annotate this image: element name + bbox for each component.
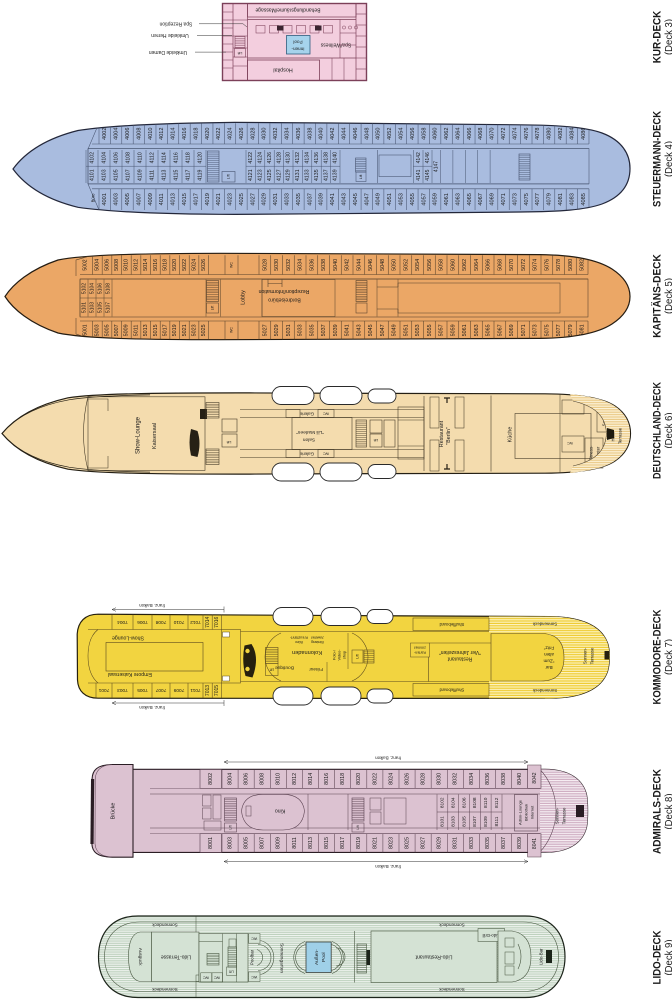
- svg-text:5101: 5101: [81, 302, 87, 313]
- svg-text:5061: 5061: [462, 324, 468, 336]
- svg-text:4052: 4052: [387, 127, 393, 139]
- svg-text:8003: 8003: [227, 837, 233, 849]
- svg-text:5108: 5108: [105, 283, 111, 294]
- svg-text:Pool: Pool: [321, 952, 327, 962]
- svg-text:Umkleide Damen: Umkleide Damen: [149, 49, 188, 55]
- svg-text:KOMMODORE-DECK: KOMMODORE-DECK: [651, 609, 663, 704]
- svg-text:5073: 5073: [533, 324, 539, 336]
- svg-text:WC: WC: [323, 412, 329, 416]
- svg-text:5003: 5003: [95, 324, 101, 336]
- svg-text:8022: 8022: [372, 773, 378, 785]
- svg-text:5037: 5037: [321, 324, 327, 336]
- svg-text:5064: 5064: [474, 259, 480, 271]
- svg-text:5019: 5019: [172, 324, 178, 336]
- svg-text:Umkleide Herren: Umkleide Herren: [151, 32, 189, 38]
- svg-text:8107: 8107: [472, 816, 478, 827]
- svg-text:4118: 4118: [185, 152, 191, 163]
- svg-text:5042: 5042: [345, 259, 351, 271]
- svg-text:Sonnendeck: Sonnendeck: [439, 922, 465, 927]
- svg-text:Lido-Terrasse: Lido-Terrasse: [161, 953, 192, 959]
- svg-text:5033: 5033: [298, 324, 304, 336]
- svg-text:7009: 7009: [173, 687, 184, 693]
- svg-text:5058: 5058: [439, 259, 445, 271]
- svg-text:4066: 4066: [467, 127, 473, 139]
- svg-text:4071: 4071: [501, 193, 507, 205]
- svg-text:4141: 4141: [416, 169, 422, 180]
- svg-text:Büro: Büro: [295, 640, 303, 644]
- svg-text:5016: 5016: [153, 259, 159, 271]
- svg-text:"Lili Marleen": "Lili Marleen": [296, 429, 324, 435]
- svg-text:4064: 4064: [455, 127, 461, 139]
- svg-text:(Deck 3): (Deck 3): [664, 19, 672, 55]
- svg-text:7003: 7003: [117, 687, 128, 693]
- svg-text:4134: 4134: [304, 152, 310, 164]
- svg-text:Hospital: Hospital: [273, 67, 292, 73]
- svg-text:Büro: Büro: [91, 193, 96, 203]
- svg-text:5077: 5077: [556, 324, 562, 336]
- svg-text:8105: 8105: [461, 816, 467, 827]
- svg-text:"Berlin": "Berlin": [446, 427, 452, 445]
- svg-text:4077: 4077: [535, 193, 541, 205]
- svg-text:4076: 4076: [524, 127, 530, 139]
- svg-text:Sonnendeck: Sonnendeck: [152, 922, 178, 927]
- svg-text:5023: 5023: [191, 324, 197, 336]
- svg-text:4033: 4033: [284, 193, 290, 205]
- svg-text:5072: 5072: [521, 259, 527, 271]
- svg-text:Bordreisebüro: Bordreisebüro: [268, 297, 301, 303]
- svg-text:8007: 8007: [260, 837, 266, 849]
- svg-text:5054: 5054: [415, 259, 421, 271]
- svg-text:4069: 4069: [490, 193, 496, 205]
- svg-text:4014: 4014: [171, 127, 177, 139]
- svg-text:8027: 8027: [421, 837, 427, 849]
- svg-text:5039: 5039: [333, 324, 339, 336]
- svg-text:5106: 5106: [97, 283, 103, 294]
- svg-text:5006: 5006: [104, 259, 110, 271]
- svg-text:(Deck 4): (Deck 4): [664, 141, 672, 177]
- svg-text:4125: 4125: [267, 169, 273, 181]
- svg-text:Behandlungsräume/Massage: Behandlungsräume/Massage: [255, 7, 320, 13]
- svg-text:5018: 5018: [162, 259, 168, 271]
- svg-text:5009: 5009: [124, 324, 130, 336]
- svg-text:Juwelier: Juwelier: [310, 636, 324, 640]
- svg-text:5041: 5041: [345, 324, 351, 336]
- svg-text:5075: 5075: [544, 324, 550, 336]
- svg-text:5013: 5013: [143, 324, 149, 336]
- svg-text:4072: 4072: [501, 127, 507, 139]
- svg-text:5065: 5065: [486, 324, 492, 336]
- svg-text:8010: 8010: [276, 773, 282, 785]
- svg-text:5025: 5025: [201, 324, 207, 336]
- svg-text:5071: 5071: [521, 324, 527, 336]
- svg-text:8001: 8001: [208, 837, 214, 849]
- svg-text:4012: 4012: [159, 127, 165, 139]
- svg-text:5059: 5059: [450, 324, 456, 336]
- svg-text:WC: WC: [229, 262, 233, 268]
- svg-text:5002: 5002: [82, 259, 88, 270]
- svg-text:5047: 5047: [380, 324, 386, 336]
- svg-text:4018: 4018: [193, 127, 199, 139]
- svg-text:4081: 4081: [558, 193, 564, 205]
- svg-text:Lido-Bar: Lido-Bar: [539, 948, 544, 965]
- svg-text:4063: 4063: [455, 193, 461, 205]
- svg-text:WC: WC: [323, 452, 329, 456]
- svg-text:4046: 4046: [353, 127, 359, 139]
- svg-text:7015: 7015: [214, 685, 220, 696]
- svg-text:STEUERMANN-DECK: STEUERMANN-DECK: [651, 111, 663, 207]
- svg-text:5035: 5035: [309, 324, 315, 336]
- svg-text:5062: 5062: [462, 259, 468, 271]
- svg-text:Lift: Lift: [226, 174, 230, 179]
- svg-text:Lift: Lift: [356, 825, 360, 829]
- svg-text:Lift: Lift: [374, 438, 379, 442]
- svg-text:Show-Lounge: Show-Lounge: [136, 416, 142, 454]
- svg-text:5070: 5070: [509, 259, 515, 271]
- svg-text:8030: 8030: [437, 773, 443, 785]
- svg-text:Spa Rezeption: Spa Rezeption: [159, 20, 192, 26]
- svg-text:Bintang: Bintang: [311, 640, 323, 644]
- svg-text:4050: 4050: [376, 127, 382, 139]
- svg-text:8034: 8034: [469, 773, 475, 785]
- svg-text:4038: 4038: [307, 127, 313, 139]
- svg-text:KAPITÄNS-DECK: KAPITÄNS-DECK: [650, 254, 663, 338]
- svg-text:"Zum: "Zum: [543, 658, 554, 663]
- svg-text:5103: 5103: [89, 302, 95, 313]
- svg-text:5050: 5050: [392, 259, 398, 271]
- svg-text:5060: 5060: [450, 259, 456, 271]
- svg-text:5004: 5004: [95, 259, 101, 271]
- svg-text:5102: 5102: [81, 283, 87, 294]
- svg-text:4053: 4053: [398, 193, 404, 205]
- svg-text:8042: 8042: [532, 772, 538, 783]
- svg-text:4036: 4036: [296, 127, 302, 139]
- svg-text:5048: 5048: [380, 259, 386, 271]
- svg-text:4031: 4031: [273, 193, 279, 205]
- svg-text:8011: 8011: [292, 837, 298, 849]
- svg-text:5066: 5066: [486, 259, 492, 271]
- svg-text:ADMIRALS-DECK: ADMIRALS-DECK: [651, 769, 663, 854]
- svg-text:Lift: Lift: [359, 174, 363, 179]
- svg-text:4019: 4019: [205, 193, 211, 205]
- svg-text:4122: 4122: [248, 152, 254, 164]
- svg-text:Galerie: Galerie: [299, 411, 314, 416]
- svg-text:Poolbar: Poolbar: [250, 949, 255, 965]
- svg-text:Sonnendeck: Sonnendeck: [532, 621, 557, 626]
- svg-text:5051: 5051: [403, 324, 409, 336]
- svg-text:4021: 4021: [216, 193, 222, 205]
- svg-text:Internet: Internet: [530, 805, 535, 819]
- svg-text:5028: 5028: [262, 259, 268, 271]
- svg-text:Sonnendeck: Sonnendeck: [152, 987, 178, 992]
- svg-text:4140: 4140: [333, 152, 339, 164]
- svg-text:5046: 5046: [368, 259, 374, 271]
- svg-text:WC: WC: [229, 327, 233, 333]
- svg-text:5010: 5010: [124, 259, 130, 271]
- svg-text:Innen-: Innen-: [291, 46, 304, 51]
- svg-text:4062: 4062: [444, 127, 450, 139]
- svg-text:8040: 8040: [517, 773, 523, 785]
- svg-text:5069: 5069: [509, 324, 515, 336]
- svg-text:5082: 5082: [580, 259, 586, 271]
- svg-text:8019: 8019: [356, 837, 362, 849]
- svg-text:Bibliothek: Bibliothek: [524, 804, 529, 821]
- svg-text:8032: 8032: [453, 773, 459, 785]
- svg-text:4044: 4044: [341, 127, 347, 139]
- svg-text:5005: 5005: [104, 324, 110, 336]
- svg-text:5055: 5055: [427, 324, 433, 336]
- svg-text:(Deck 7): (Deck 7): [664, 639, 672, 675]
- svg-text:4026: 4026: [239, 127, 245, 139]
- svg-text:Boutique: Boutique: [275, 665, 294, 671]
- svg-text:5045: 5045: [368, 324, 374, 336]
- svg-text:8029: 8029: [437, 837, 443, 849]
- svg-text:4136: 4136: [314, 152, 320, 164]
- svg-text:8018: 8018: [340, 773, 346, 785]
- svg-text:"Vier Jahreszeiten": "Vier Jahreszeiten": [439, 649, 481, 655]
- svg-text:5001: 5001: [82, 324, 88, 335]
- svg-text:4058: 4058: [421, 127, 427, 139]
- svg-text:4102: 4102: [89, 152, 95, 164]
- svg-text:4116: 4116: [173, 152, 179, 163]
- svg-text:Sonnen-: Sonnen-: [583, 647, 588, 664]
- svg-text:8108: 8108: [472, 797, 478, 808]
- svg-text:4132: 4132: [295, 152, 301, 164]
- svg-text:5026: 5026: [201, 259, 207, 271]
- svg-text:7004: 7004: [117, 619, 128, 625]
- svg-text:4008: 4008: [136, 127, 142, 139]
- svg-text:4074: 4074: [512, 127, 518, 139]
- svg-text:4083: 4083: [569, 193, 575, 205]
- svg-text:4049: 4049: [376, 193, 382, 205]
- svg-text:5008: 5008: [114, 259, 120, 271]
- svg-text:4054: 4054: [398, 127, 404, 139]
- svg-text:7011: 7011: [190, 687, 201, 693]
- svg-text:Lido-Restaurant: Lido-Restaurant: [415, 954, 452, 960]
- svg-text:8016: 8016: [324, 773, 330, 785]
- svg-text:5079: 5079: [568, 324, 574, 336]
- svg-text:Foto-/: Foto-/: [333, 649, 337, 660]
- svg-text:8025: 8025: [404, 837, 410, 849]
- svg-text:4131: 4131: [295, 169, 301, 181]
- svg-text:8017: 8017: [340, 837, 346, 849]
- svg-text:4040: 4040: [319, 127, 325, 139]
- svg-text:5040: 5040: [333, 259, 339, 271]
- svg-text:4037: 4037: [307, 193, 313, 205]
- svg-text:5017: 5017: [162, 324, 168, 336]
- svg-text:4124: 4124: [257, 152, 263, 164]
- svg-text:Shuffleboard: Shuffleboard: [439, 688, 464, 693]
- svg-text:DEUTSCHLAND-DECK: DEUTSCHLAND-DECK: [651, 382, 663, 479]
- svg-text:5032: 5032: [286, 259, 292, 271]
- svg-text:4129: 4129: [286, 169, 292, 181]
- svg-text:4080: 4080: [547, 127, 553, 139]
- svg-text:4105: 4105: [113, 169, 119, 181]
- svg-text:franz. Balkon: franz. Balkon: [139, 705, 165, 710]
- svg-text:5034: 5034: [298, 259, 304, 271]
- svg-text:Lift: Lift: [228, 825, 232, 829]
- svg-text:4114: 4114: [161, 152, 167, 163]
- svg-text:Lift: Lift: [355, 654, 359, 659]
- svg-text:8015: 8015: [324, 837, 330, 849]
- svg-text:8023: 8023: [388, 837, 394, 849]
- svg-text:5105: 5105: [97, 302, 103, 313]
- svg-text:8009: 8009: [276, 837, 282, 849]
- svg-text:8014: 8014: [308, 773, 314, 785]
- svg-text:5107: 5107: [105, 302, 111, 313]
- svg-text:7010: 7010: [173, 619, 184, 625]
- svg-text:4138: 4138: [323, 152, 329, 164]
- svg-text:Restaurant: Restaurant: [447, 655, 472, 661]
- svg-text:5014: 5014: [143, 259, 149, 271]
- svg-text:5015: 5015: [153, 324, 159, 336]
- svg-text:4005: 4005: [125, 193, 131, 205]
- svg-text:4022: 4022: [216, 127, 222, 139]
- svg-text:4146: 4146: [425, 152, 431, 163]
- svg-text:Lift: Lift: [227, 440, 232, 444]
- svg-text:Küche: Küche: [507, 427, 513, 443]
- svg-text:5044: 5044: [356, 259, 362, 271]
- svg-text:5020: 5020: [172, 259, 178, 271]
- svg-text:alten: alten: [544, 652, 554, 657]
- svg-text:8102: 8102: [440, 797, 446, 808]
- svg-text:4078: 4078: [535, 127, 541, 139]
- svg-text:4013: 4013: [171, 193, 177, 205]
- svg-text:8112: 8112: [494, 797, 500, 808]
- svg-text:8006: 8006: [244, 773, 250, 785]
- svg-text:5007: 5007: [114, 324, 120, 336]
- svg-text:8002: 8002: [208, 773, 214, 785]
- svg-text:8106: 8106: [461, 797, 467, 808]
- svg-text:Außen-: Außen-: [314, 949, 320, 965]
- svg-text:4135: 4135: [314, 169, 320, 181]
- svg-text:5024: 5024: [191, 259, 197, 271]
- svg-text:4043: 4043: [341, 193, 347, 205]
- svg-text:WC: WC: [567, 441, 573, 445]
- svg-text:5078: 5078: [556, 259, 562, 271]
- svg-text:4109: 4109: [137, 169, 143, 181]
- svg-text:4142: 4142: [416, 152, 422, 163]
- svg-text:8004: 8004: [227, 773, 233, 785]
- svg-text:4016: 4016: [182, 127, 188, 139]
- svg-text:8024: 8024: [388, 773, 394, 785]
- svg-text:4009: 4009: [148, 193, 154, 205]
- svg-text:7016: 7016: [214, 617, 220, 628]
- svg-text:8039: 8039: [517, 837, 523, 849]
- svg-text:4047: 4047: [364, 193, 370, 205]
- svg-text:franz. Balkon: franz. Balkon: [139, 603, 165, 608]
- svg-text:8041: 8041: [532, 838, 538, 849]
- svg-text:Galerie: Galerie: [299, 451, 314, 456]
- svg-text:Ausguck: Ausguck: [138, 948, 143, 966]
- svg-text:Salon: Salon: [303, 437, 316, 443]
- svg-text:LIDO-DECK: LIDO-DECK: [651, 930, 663, 984]
- svg-text:Pool: Pool: [293, 39, 302, 44]
- svg-text:(Deck 8): (Deck 8): [664, 794, 672, 830]
- svg-text:5076: 5076: [544, 259, 550, 271]
- svg-text:4073: 4073: [512, 193, 518, 205]
- svg-text:8104: 8104: [450, 797, 456, 808]
- svg-text:5038: 5038: [321, 259, 327, 271]
- svg-text:4010: 4010: [148, 127, 154, 139]
- svg-text:4059: 4059: [433, 193, 439, 205]
- svg-text:4042: 4042: [330, 127, 336, 139]
- svg-text:Terrasse: Terrasse: [590, 647, 595, 664]
- svg-text:4119: 4119: [197, 170, 203, 181]
- svg-text:Video-: Video-: [338, 649, 342, 661]
- svg-text:Bar: Bar: [545, 665, 553, 670]
- svg-text:8036: 8036: [485, 773, 491, 785]
- svg-text:Brücke: Brücke: [110, 803, 116, 820]
- svg-text:(Deck 6): (Deck 6): [664, 413, 672, 449]
- svg-text:5027: 5027: [262, 324, 268, 336]
- svg-text:4139: 4139: [333, 169, 339, 181]
- svg-text:4004: 4004: [114, 127, 120, 139]
- svg-text:8110: 8110: [483, 797, 489, 808]
- svg-text:5012: 5012: [133, 259, 139, 271]
- svg-text:4057: 4057: [421, 193, 427, 205]
- svg-text:4060: 4060: [433, 127, 439, 139]
- svg-text:5080: 5080: [568, 259, 574, 271]
- svg-text:4075: 4075: [524, 193, 530, 205]
- svg-text:KUR-DECK: KUR-DECK: [651, 11, 663, 64]
- svg-text:4133: 4133: [304, 169, 310, 181]
- svg-text:4048: 4048: [364, 127, 370, 139]
- svg-text:4017: 4017: [193, 193, 199, 205]
- svg-text:5011: 5011: [133, 325, 139, 337]
- svg-text:franz. Balkon: franz. Balkon: [375, 864, 401, 869]
- svg-text:8101: 8101: [440, 816, 446, 827]
- svg-text:4068: 4068: [478, 127, 484, 139]
- svg-text:8020: 8020: [356, 773, 362, 785]
- svg-text:8109: 8109: [483, 816, 489, 827]
- svg-text:5067: 5067: [497, 324, 503, 336]
- svg-text:5031: 5031: [286, 324, 292, 336]
- svg-text:5049: 5049: [392, 324, 398, 336]
- svg-text:4035: 4035: [296, 193, 302, 205]
- svg-text:4107: 4107: [125, 169, 131, 181]
- svg-text:4120: 4120: [197, 152, 203, 164]
- svg-text:7007: 7007: [155, 687, 166, 693]
- svg-text:WC: WC: [214, 975, 220, 979]
- svg-text:4145: 4145: [425, 169, 431, 180]
- svg-text:Kaisersaal: Kaisersaal: [152, 423, 158, 449]
- svg-text:8008: 8008: [260, 773, 266, 785]
- svg-text:5104: 5104: [89, 283, 95, 294]
- svg-text:Adlon-Lounge: Adlon-Lounge: [518, 799, 523, 825]
- svg-text:4011: 4011: [159, 193, 165, 205]
- svg-text:4084: 4084: [569, 127, 575, 139]
- svg-text:4101: 4101: [89, 169, 95, 181]
- svg-text:8033: 8033: [469, 837, 475, 849]
- svg-text:4029: 4029: [262, 193, 268, 205]
- svg-text:Sonnengarten: Sonnengarten: [279, 943, 285, 973]
- svg-text:4045: 4045: [353, 193, 359, 205]
- svg-text:Terrasse: Terrasse: [618, 427, 623, 444]
- svg-text:7014: 7014: [205, 617, 211, 628]
- svg-text:4104: 4104: [101, 152, 107, 164]
- svg-text:4024: 4024: [227, 127, 233, 139]
- svg-text:Sonnendeck: Sonnendeck: [532, 688, 557, 693]
- svg-text:4007: 4007: [136, 193, 142, 205]
- svg-text:5052: 5052: [403, 259, 409, 271]
- svg-text:4030: 4030: [262, 127, 268, 139]
- svg-text:5056: 5056: [427, 259, 433, 271]
- svg-text:4051: 4051: [387, 193, 393, 205]
- svg-text:4041: 4041: [330, 193, 336, 205]
- svg-text:5030: 5030: [274, 259, 280, 271]
- svg-text:7006: 7006: [137, 619, 148, 625]
- svg-text:5053: 5053: [415, 324, 421, 336]
